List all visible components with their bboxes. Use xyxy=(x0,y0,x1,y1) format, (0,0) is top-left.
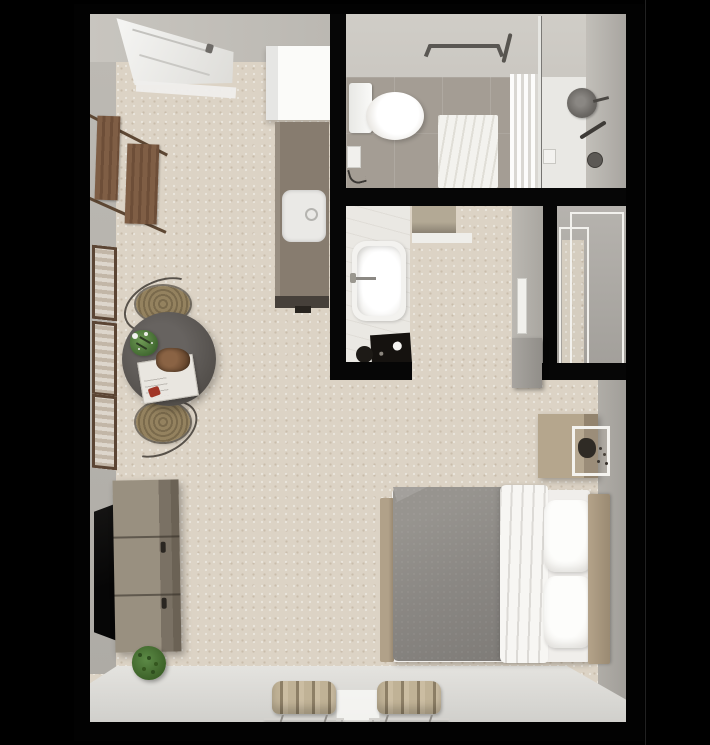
bath-mat xyxy=(438,115,498,188)
towel xyxy=(510,74,538,188)
tubroom-bottom-wall xyxy=(330,362,412,380)
bench-right xyxy=(377,681,441,714)
closet-left-wall xyxy=(543,206,557,380)
pillow-bottom xyxy=(544,576,592,648)
dining-chair-south xyxy=(136,402,190,442)
outer-wall-left xyxy=(74,4,90,741)
white-duvet xyxy=(500,485,548,663)
tub-cabinet xyxy=(412,206,456,235)
render-seam xyxy=(645,0,646,745)
gallery-frame-1 xyxy=(92,245,117,322)
upper-cabinet xyxy=(266,46,332,120)
tubroom-left-wall xyxy=(330,188,346,380)
kitchen-sink xyxy=(282,190,326,242)
pillow-top xyxy=(544,500,592,572)
coat-rack-plank-2 xyxy=(125,143,160,224)
serving-tray xyxy=(137,354,199,404)
tub-stool xyxy=(356,346,373,363)
toilet-bowl xyxy=(366,92,424,140)
floor-plant xyxy=(132,646,166,680)
hand-shower-head xyxy=(587,152,603,168)
headboard xyxy=(588,494,610,664)
table-plant xyxy=(130,330,158,356)
dark-bath-mat xyxy=(370,333,412,366)
closet-sliding-door-inner xyxy=(559,227,589,367)
outer-wall-bottom xyxy=(74,722,644,741)
kitchen-side-wall xyxy=(330,6,346,206)
footboard xyxy=(380,498,394,662)
outer-wall-top xyxy=(74,4,644,14)
floor-plan xyxy=(0,0,710,745)
grab-bar xyxy=(428,44,500,48)
shower-control xyxy=(543,149,556,164)
shower-head xyxy=(567,88,597,118)
outer-wall-right xyxy=(626,4,644,741)
tub-faucet xyxy=(352,277,376,280)
gallery-frame-3 xyxy=(92,394,117,471)
shower-glass-divider xyxy=(538,16,541,188)
media-console xyxy=(113,479,182,652)
open-door-leaf xyxy=(512,338,542,388)
bathtub xyxy=(352,241,406,321)
bathroom-bottom-wall xyxy=(330,188,641,206)
bench-left xyxy=(272,681,336,714)
gallery-frame-2 xyxy=(92,321,117,398)
toilet-paper-holder xyxy=(347,146,361,168)
coat-rack-plank-1 xyxy=(95,116,121,201)
tubroom-door-frame xyxy=(517,278,527,334)
nightstand-decor xyxy=(578,438,596,458)
console-table xyxy=(336,689,380,721)
counter-notch xyxy=(295,306,311,313)
gray-blanket xyxy=(393,487,511,661)
tub-shelf xyxy=(412,233,472,243)
